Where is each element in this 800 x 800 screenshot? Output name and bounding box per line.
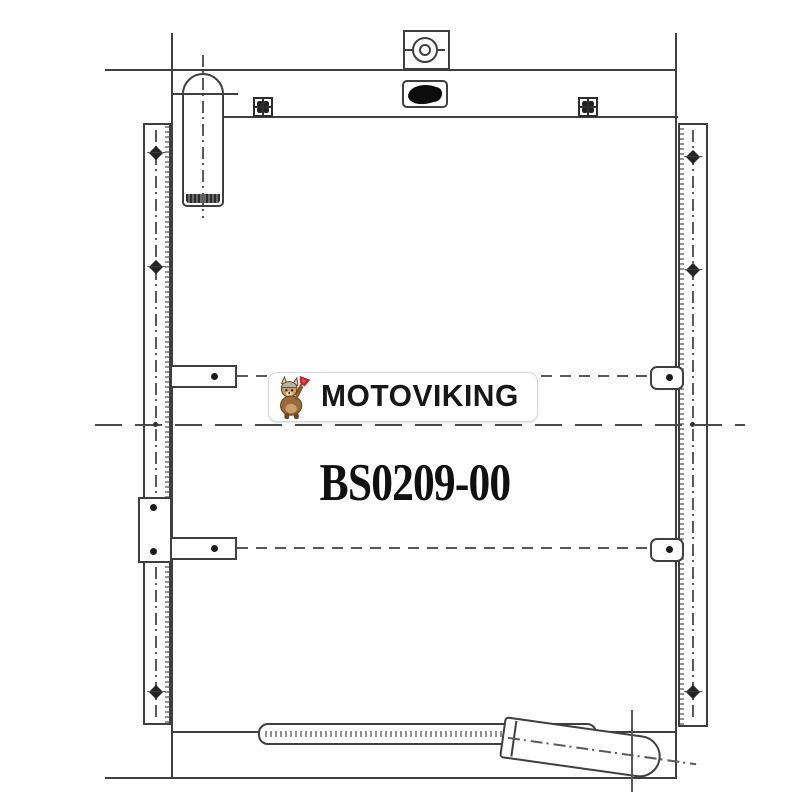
- top-bolt-left: [253, 97, 273, 117]
- inlet-tube-centerline: [202, 55, 204, 218]
- viking-mascot-icon: [273, 374, 315, 420]
- bottom-line: [105, 777, 677, 779]
- filler-cap-knob-shadow: [426, 87, 442, 102]
- centerline-cross-dot: [690, 422, 695, 427]
- clip-pin: [666, 374, 673, 381]
- bracket-pin: [211, 545, 218, 552]
- core-top-edge-line: [224, 116, 678, 118]
- lifting-eye-hole: [419, 44, 431, 56]
- clip-pin: [666, 546, 673, 553]
- lower-mount-dashed-line: [237, 547, 650, 549]
- horizontal-center-line: [95, 424, 745, 426]
- outlet-cross-centerline: [631, 710, 633, 792]
- oil-cooler-diagram-image: MOTOVIKING BS0209-00: [0, 0, 800, 800]
- outlet-tube-centerline: [508, 737, 696, 765]
- motoviking-logo-badge: MOTOVIKING: [268, 372, 538, 422]
- eye-centerline-tick-left: [405, 49, 414, 51]
- centerline-cross-dot: [153, 422, 158, 427]
- mount-block-bolt: [150, 548, 157, 555]
- bracket-pin: [211, 373, 218, 380]
- mount-block-bolt: [150, 504, 157, 511]
- top-bolt-right: [578, 97, 598, 117]
- left-edge-line: [171, 33, 173, 778]
- right-edge-line: [675, 33, 677, 778]
- logo-text: MOTOVIKING: [321, 380, 519, 415]
- filler-cap: [402, 80, 448, 108]
- inlet-flange-line: [172, 93, 238, 95]
- upper-left-bracket: [170, 365, 237, 388]
- eye-centerline-tick-right: [436, 49, 445, 51]
- lower-left-bracket: [170, 537, 237, 560]
- part-number-label: BS0209-00: [308, 453, 521, 513]
- top-line: [105, 69, 677, 71]
